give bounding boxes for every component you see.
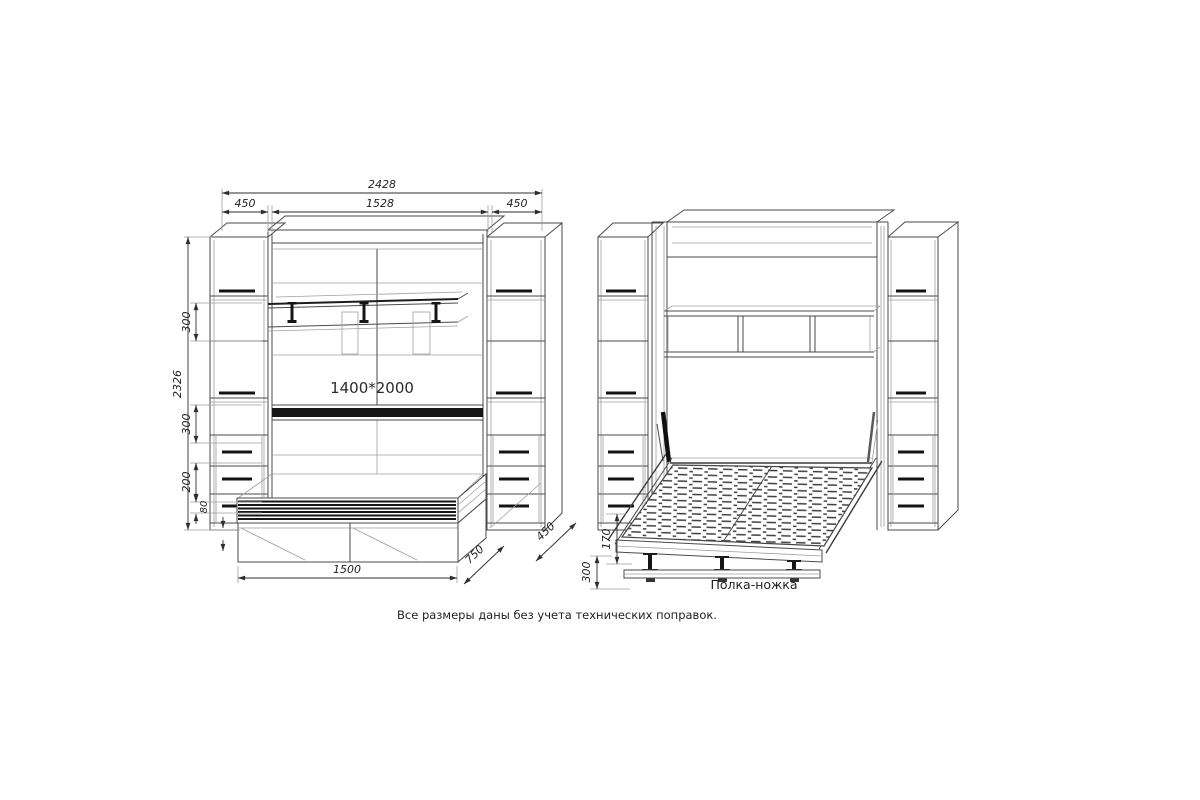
closed-left-cabinet <box>210 237 268 530</box>
closed-right-cabinet <box>487 237 545 530</box>
dim-cabinet-depth: 450 <box>534 520 576 561</box>
sleeping-area-label: 1400*2000 <box>330 379 414 397</box>
dim-platform-height: 170 <box>600 514 632 564</box>
svg-text:170: 170 <box>600 529 613 550</box>
dim-bench-length: 1500 <box>238 563 457 583</box>
svg-text:2428: 2428 <box>368 178 396 191</box>
closed-bench <box>237 474 541 562</box>
open-right-cabinet <box>888 237 938 530</box>
technical-drawing-canvas: 1400*2000 2428 <box>0 0 1200 800</box>
svg-text:80: 80 <box>199 501 210 514</box>
svg-text:450: 450 <box>507 197 528 210</box>
closed-wall-shelf <box>268 292 468 354</box>
closed-fold-handle-band <box>272 405 483 420</box>
closed-view-drawing: 1400*2000 2428 <box>171 178 576 584</box>
footnote: Все размеры даны без учета технических п… <box>397 608 717 622</box>
drawing-page: 1400*2000 2428 <box>0 0 1200 800</box>
svg-text:300: 300 <box>180 312 193 333</box>
dim-section-widths: 450 1528 450 <box>222 197 542 232</box>
dim-floor-clearance: 300 <box>580 556 630 589</box>
svg-text:200: 200 <box>180 472 193 493</box>
closed-carcass <box>210 216 562 530</box>
svg-text:2326: 2326 <box>171 370 184 398</box>
open-niche-shelves <box>664 306 880 357</box>
leg-shelf-label: Полка-ножка <box>710 577 797 592</box>
open-fold-line <box>670 458 872 463</box>
svg-text:1528: 1528 <box>366 197 394 210</box>
shelf-bracket <box>432 302 441 323</box>
svg-text:450: 450 <box>235 197 256 210</box>
svg-text:1500: 1500 <box>333 563 361 576</box>
svg-text:300: 300 <box>180 414 193 435</box>
svg-text:300: 300 <box>580 562 593 583</box>
shelf-bracket <box>288 302 297 323</box>
open-left-cabinet <box>598 237 648 530</box>
open-view-drawing: 170 300 Полка-ножка <box>580 210 958 592</box>
open-bed <box>608 454 882 582</box>
